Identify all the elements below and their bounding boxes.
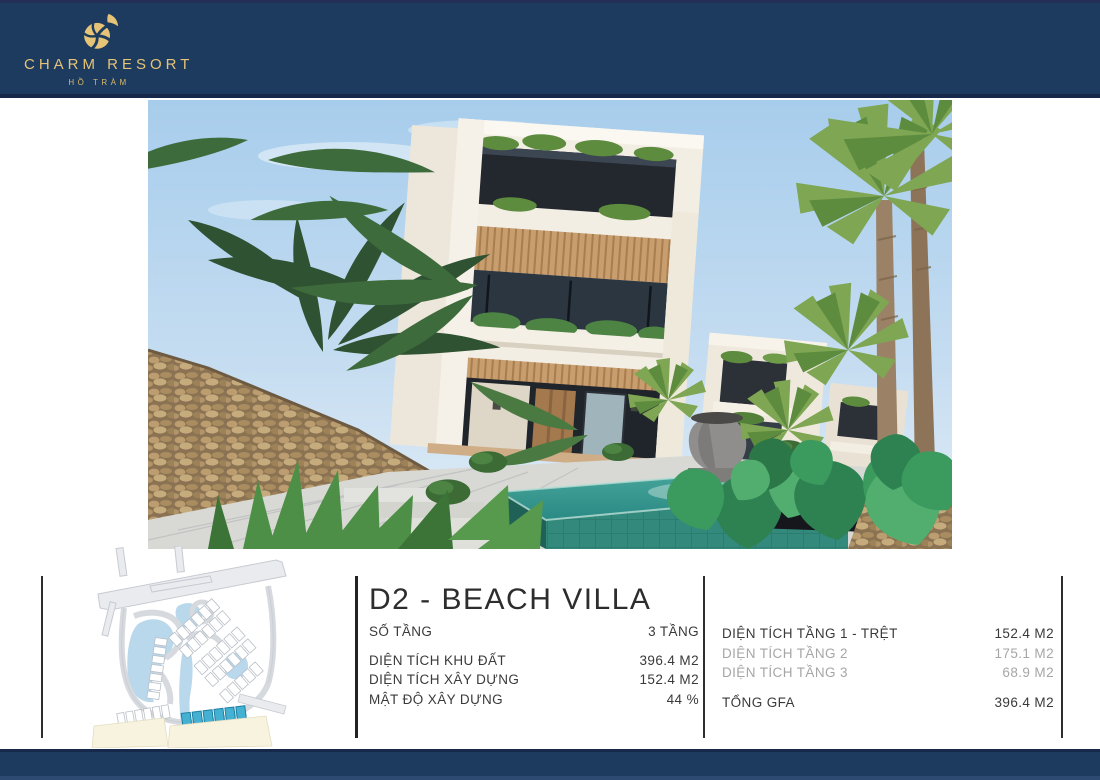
villa-title: D2 - BEACH VILLA [369,583,699,617]
spec-row-floor1: DIỆN TÍCH TẦNG 1 - TRỆT 152.4 M2 [722,624,1054,644]
spec-value: 3 TẦNG [648,622,699,642]
specs-left-column: SỐ TẦNG 3 TẦNG DIỆN TÍCH KHU ĐẤT 396.4 M… [369,622,699,709]
spec-label: DIỆN TÍCH TẦNG 1 - TRỆT [722,624,898,644]
spec-label: DIỆN TÍCH XÂY DỰNG [369,670,519,690]
brand-logo: CHARM RESORT HỒ TRÀM [24,6,174,87]
spec-value: 152.4 M2 [640,670,700,690]
spec-value: 396.4 M2 [995,693,1055,713]
spec-value: 175.1 M2 [995,644,1055,664]
spec-row-total-gfa: TỔNG GFA 396.4 M2 [722,693,1054,713]
villa-photo [148,100,952,549]
divider-left [41,576,43,738]
spec-row-floor2: DIỆN TÍCH TẦNG 2 175.1 M2 [722,644,1054,664]
specs-right-column: DIỆN TÍCH TẦNG 1 - TRỆT 152.4 M2 DIỆN TÍ… [722,624,1054,712]
spec-label: SỐ TẦNG [369,622,432,642]
spec-label: DIỆN TÍCH TẦNG 3 [722,663,848,683]
villa-rendering-illustration [148,100,952,549]
spec-label: TỔNG GFA [722,693,795,713]
spec-value: 68.9 M2 [1002,663,1054,683]
divider-title [355,576,358,738]
spec-row-floor3: DIỆN TÍCH TẦNG 3 68.9 M2 [722,663,1054,683]
nautilus-shell-icon [76,10,122,54]
spec-value: 152.4 M2 [995,624,1055,644]
spec-row-floors: SỐ TẦNG 3 TẦNG [369,622,699,642]
masterplan-map [90,546,298,748]
divider-middle [703,576,705,738]
spec-row-density: MẬT ĐỘ XÂY DỰNG 44 % [369,690,699,710]
spec-label: DIỆN TÍCH KHU ĐẤT [369,651,506,671]
spec-value: 396.4 M2 [640,651,700,671]
divider-right [1061,576,1063,738]
brochure-page: { "brand": { "name": "CHARM RESORT", "lo… [0,0,1100,780]
brand-location: HỒ TRÀM [24,78,174,87]
spec-value: 44 % [667,690,699,710]
masterplan-map-illustration [90,546,298,748]
spec-row-land-area: DIỆN TÍCH KHU ĐẤT 396.4 M2 [369,651,699,671]
spec-label: MẬT ĐỘ XÂY DỰNG [369,690,503,710]
spec-row-build-area: DIỆN TÍCH XÂY DỰNG 152.4 M2 [369,670,699,690]
bottom-navy-bar [0,749,1100,780]
map-roads [98,546,286,723]
top-navy-bar: CHARM RESORT HỒ TRÀM [0,0,1100,98]
spec-label: DIỆN TÍCH TẦNG 2 [722,644,848,664]
brand-name: CHARM RESORT [24,56,174,73]
